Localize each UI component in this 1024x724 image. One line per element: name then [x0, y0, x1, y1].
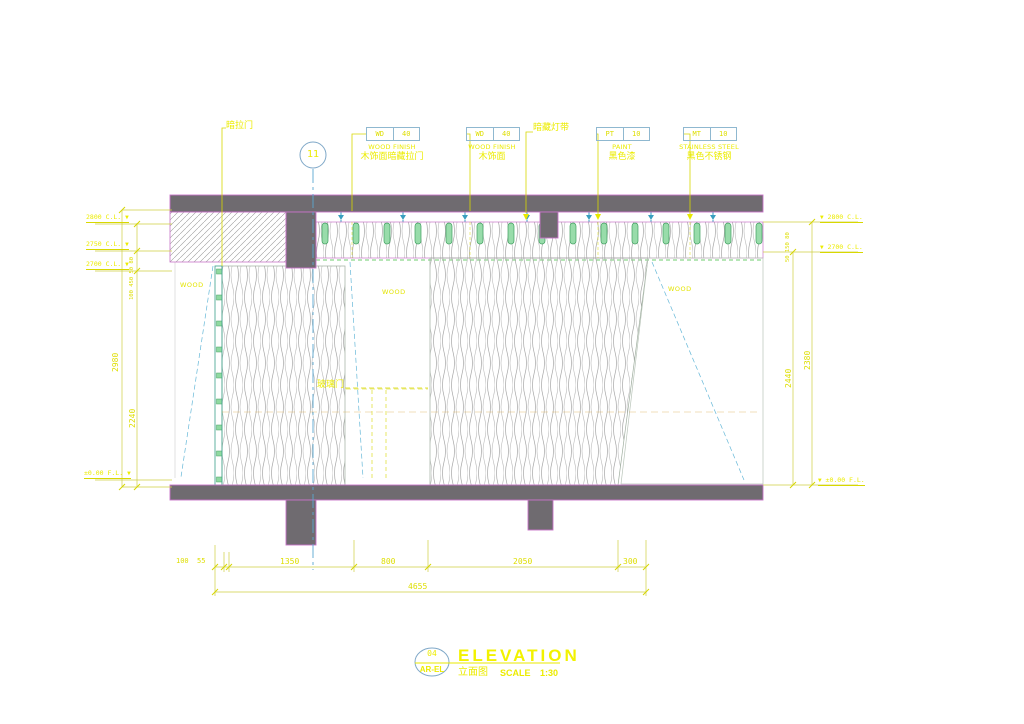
cad-elevation-sheet: 暗拉门 暗藏灯带 WD 40 WOOD FINISH 木饰面暗藏拉门 WD 40… [0, 0, 1024, 724]
tag-en: WOOD FINISH [337, 144, 447, 151]
dim-right-inner: 2440 [785, 369, 793, 388]
bottom-stub [528, 500, 553, 530]
title-scale-value: 1:30 [540, 669, 558, 678]
dim-bottom-seg: 55 [197, 558, 205, 565]
wood-label-mid: WOOD [382, 289, 406, 296]
tag-num: 10 [623, 128, 650, 140]
dim-bottom-total: 4655 [408, 583, 427, 591]
title-scale-label: SCALE [500, 669, 531, 678]
tag-code: WD [367, 128, 393, 140]
dim-bottom-seg: 100 [176, 558, 189, 565]
hidden-door-edge-strip [215, 266, 222, 485]
dim-right-outer: 2380 [804, 351, 812, 370]
level-marker-icon: ▼ [820, 244, 824, 251]
tag-cn: 木饰面暗藏拉门 [337, 153, 447, 162]
title-drawing-number: 04 [424, 650, 440, 658]
level-marker-icon: ▼ [125, 214, 129, 221]
level-flag: ±0.00 F.L. ▼ [84, 469, 131, 479]
level-flag: 2800 C.L. ▼ [86, 213, 129, 223]
dim-bottom-seg: 2050 [513, 558, 532, 566]
wood-label-right: WOOD [668, 286, 692, 293]
tag-code: WD [467, 128, 493, 140]
title-drawing-code: AR-EL [412, 666, 452, 674]
level-marker-icon: ▼ [818, 477, 822, 484]
dim-left-outer: 2980 [112, 353, 120, 372]
ceiling-slab [170, 195, 763, 212]
tag-num: 10 [710, 128, 737, 140]
level-flag: 2700 C.L. ▼ [86, 260, 129, 270]
level-flag: 2750 C.L. ▼ [86, 240, 129, 250]
bulkhead-section-hatch [170, 212, 286, 262]
level-marker-icon: ▼ [125, 241, 129, 248]
tag-num: 40 [493, 128, 520, 140]
center-wood-panel [430, 258, 648, 485]
top-stub [540, 212, 558, 238]
left-panel-diagonal [181, 266, 213, 477]
tag-cn: 黑色不锈钢 [654, 153, 764, 162]
dim-left-inner: 2240 [129, 409, 137, 428]
cove-downlight-row [316, 212, 763, 222]
tag-box-wd40-1: WD 40 [366, 127, 420, 141]
tag-code: MT [684, 128, 710, 140]
dim-bottom-seg: 1350 [280, 558, 299, 566]
level-marker-icon: ▼ [820, 214, 824, 221]
tag-cn: 木饰面 [437, 153, 547, 162]
level-flag: ▼ ±0.00 F.L. [818, 476, 865, 486]
tag-code: PT [597, 128, 623, 140]
hidden-door-label: 暗拉门 [226, 122, 253, 131]
elevation-drawing [0, 0, 1024, 724]
top-column [286, 212, 316, 268]
dim-right-stack: 50 150 80 [786, 232, 792, 262]
tag-en: WOOD FINISH [437, 144, 547, 151]
tag-box-mt10: MT 10 [683, 127, 737, 141]
glass-door-label: 玻璃门 [317, 381, 344, 390]
dim-bottom-seg: 300 [623, 558, 637, 566]
level-flag: ▼ 2800 C.L. [820, 213, 863, 223]
bottom-column [286, 500, 316, 545]
title-subtitle-cn: 立面图 [458, 668, 488, 678]
wood-label-left: WOOD [180, 282, 204, 289]
cove-light-label: 暗藏灯带 [533, 124, 569, 133]
level-marker-icon: ▼ [127, 470, 131, 477]
left-wood-panel [222, 266, 345, 485]
level-flag: ▼ 2700 C.L. [820, 243, 863, 253]
tag-box-pt10: PT 10 [596, 127, 650, 141]
floor-slab [170, 485, 763, 500]
dim-bottom-seg: 800 [381, 558, 395, 566]
datum-bubble-number: 11 [305, 150, 321, 160]
wood-grain-band [316, 222, 763, 260]
tag-box-wd40-2: WD 40 [466, 127, 520, 141]
tag-num: 40 [393, 128, 420, 140]
tag-en: STAINLESS STEEL [654, 144, 764, 151]
title-elevation: ELEVATION [458, 646, 580, 666]
dim-left-stack: 100 450 50 80 [130, 257, 136, 300]
